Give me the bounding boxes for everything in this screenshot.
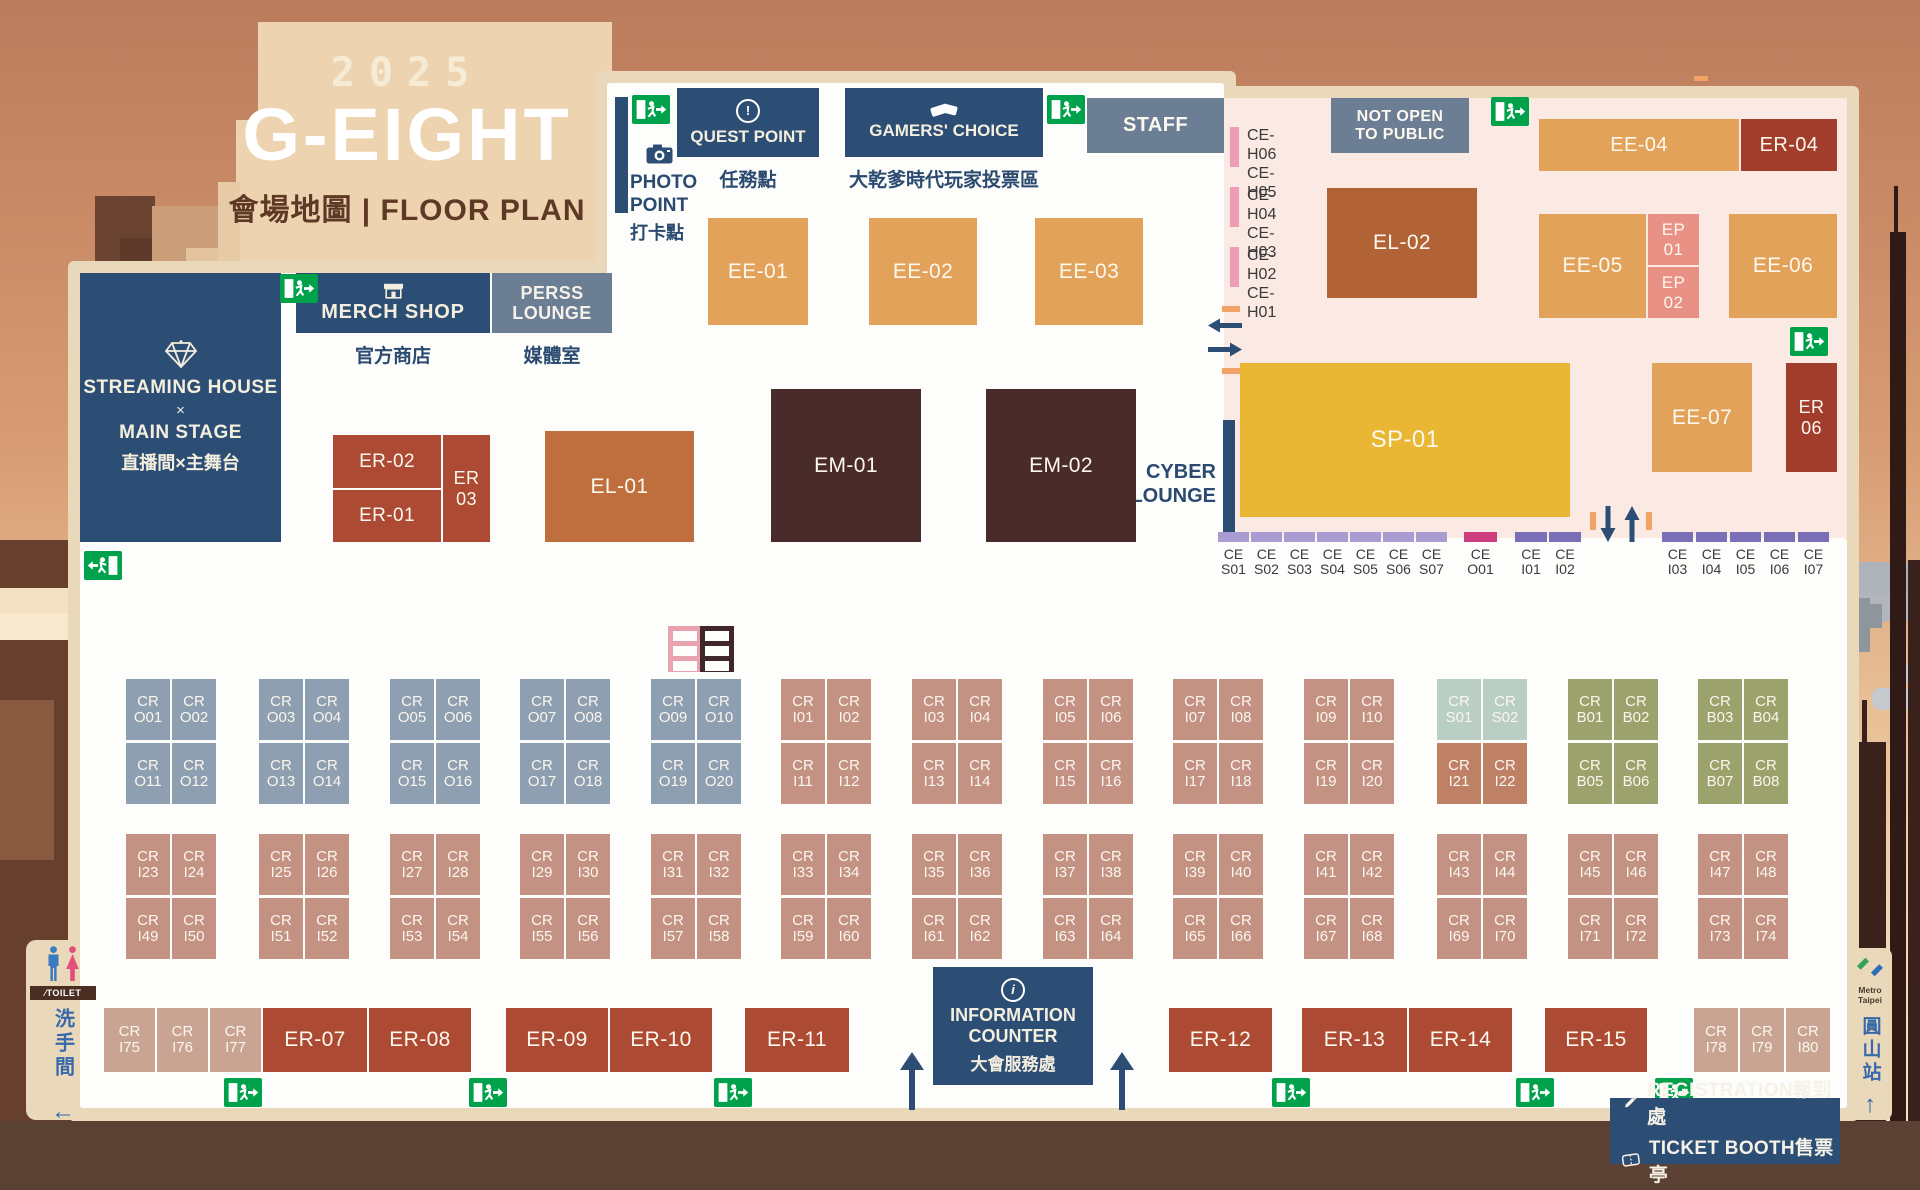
booth-CR-I56: CR I56 <box>566 898 610 959</box>
entrance-arrow-up <box>898 1050 926 1110</box>
booth-CR-I64: CR I64 <box>1089 898 1133 959</box>
cyber-lounge-bar <box>1223 420 1235 538</box>
booth-CR-I32: CR I32 <box>697 834 741 895</box>
press-lounge-label: PERSS LOUNGE <box>512 283 591 323</box>
booth-CR-B03: CR B03 <box>1698 679 1742 740</box>
booth-CR-I07: CR I07 <box>1173 679 1217 740</box>
booth-CR-I66: CR I66 <box>1219 898 1263 959</box>
entrance-arrow-up <box>1108 1050 1136 1110</box>
booth-CR-I59: CR I59 <box>781 898 825 959</box>
booth-CR-I74: CR I74 <box>1744 898 1788 959</box>
exit-sign-icon <box>1491 97 1529 126</box>
booth-CR-I11: CR I11 <box>781 743 825 804</box>
booth-CR-I54: CR I54 <box>436 898 480 959</box>
ladder-decor <box>700 626 734 672</box>
booth-CR-I45: CR I45 <box>1568 834 1612 895</box>
ce-marker-bar <box>1284 532 1315 542</box>
booth-CR-I69: CR I69 <box>1437 898 1481 959</box>
info-counter-line-2: COUNTER <box>969 1026 1058 1047</box>
streaming-house-box: STREAMING HOUSE × MAIN STAGE 直播間×主舞台 <box>80 273 281 542</box>
block-ER-14: ER-14 <box>1409 1008 1512 1072</box>
block-EM-01: EM-01 <box>771 389 921 542</box>
ce-h-bar <box>1230 247 1239 287</box>
booth-CR-I53: CR I53 <box>390 898 434 959</box>
booth-CR-I42: CR I42 <box>1350 834 1394 895</box>
booth-CR-O17: CR O17 <box>520 743 564 804</box>
title-subtitle: 會場地圖 | FLOOR PLAN <box>182 185 632 229</box>
block-EP01: EP 01 <box>1648 214 1699 265</box>
booth-CR-I21: CR I21 <box>1437 743 1481 804</box>
alert-icon: ! <box>736 99 760 123</box>
toilet-area: ∕TOILET 洗手間 ← <box>30 946 96 1126</box>
ce-marker-bar <box>1317 532 1348 542</box>
booth-CR-O19: CR O19 <box>651 743 695 804</box>
block-EM-02: EM-02 <box>986 389 1136 542</box>
gamers-choice-box: GAMERS' CHOICE <box>845 88 1043 157</box>
booth-CR-O09: CR O09 <box>651 679 695 740</box>
booth-CR-I28: CR I28 <box>436 834 480 895</box>
booth-CR-I31: CR I31 <box>651 834 695 895</box>
booth-CR-I22: CR I22 <box>1483 743 1527 804</box>
booth-CR-I50: CR I50 <box>172 898 216 959</box>
booth-CR-I14: CR I14 <box>958 743 1002 804</box>
block-ER-10: ER-10 <box>610 1008 712 1072</box>
booth-CR-I43: CR I43 <box>1437 834 1481 895</box>
diamond-icon <box>163 340 199 370</box>
booth-CR-I51: CR I51 <box>259 898 303 959</box>
block-ER06: ER 06 <box>1786 363 1837 472</box>
booth-CR-S01: CR S01 <box>1437 679 1481 740</box>
booth-CR-I35: CR I35 <box>912 834 956 895</box>
merch-shop-label: MERCH SHOP <box>321 301 465 324</box>
booth-CR-O20: CR O20 <box>697 743 741 804</box>
booth-CR-I30: CR I30 <box>566 834 610 895</box>
booth-CR-I72: CR I72 <box>1614 898 1658 959</box>
streaming-line-1: STREAMING HOUSE <box>83 377 277 399</box>
block-EE-04: EE-04 <box>1539 119 1739 171</box>
event-title: 2025 G-EIGHT 會場地圖 | FLOOR PLAN <box>182 50 632 229</box>
block-ER-07: ER-07 <box>263 1008 367 1072</box>
booth-CR-O12: CR O12 <box>172 743 216 804</box>
metro-taipei-logo-icon <box>1854 954 1886 980</box>
booth-CR-I73: CR I73 <box>1698 898 1742 959</box>
pixel-antenna <box>1862 700 1867 744</box>
booth-CR-O06: CR O06 <box>436 679 480 740</box>
booth-CR-B07: CR B07 <box>1698 743 1742 804</box>
block-EE-02: EE-02 <box>869 218 977 325</box>
block-ER-11: ER-11 <box>745 1008 849 1072</box>
booth-CR-I44: CR I44 <box>1483 834 1527 895</box>
info-icon: i <box>1001 978 1025 1002</box>
booth-CR-O16: CR O16 <box>436 743 480 804</box>
block-ER-08: ER-08 <box>369 1008 471 1072</box>
booth-CR-I55: CR I55 <box>520 898 564 959</box>
booth-CR-I61: CR I61 <box>912 898 956 959</box>
block-STAFF: STAFF <box>1087 98 1224 153</box>
booth-CR-I40: CR I40 <box>1219 834 1263 895</box>
booth-CR-I80: CR I80 <box>1786 1008 1830 1072</box>
toilet-caption: 洗手間 <box>49 1008 78 1094</box>
pixel-cliff-patch <box>0 700 54 860</box>
booth-CR-I20: CR I20 <box>1350 743 1394 804</box>
exit-sign-icon <box>632 95 670 124</box>
booth-CR-S02: CR S02 <box>1483 679 1527 740</box>
booth-CR-I12: CR I12 <box>827 743 871 804</box>
booth-CR-I79: CR I79 <box>1740 1008 1784 1072</box>
multiply-sign: × <box>176 402 185 419</box>
exit-sign-icon <box>1790 327 1828 356</box>
orange-marker <box>1590 512 1596 530</box>
booth-CR-I19: CR I19 <box>1304 743 1348 804</box>
arrow-down-icon <box>1600 504 1616 544</box>
photo-point-label-1: PHOTO <box>630 172 730 194</box>
ce-marker-bar <box>1218 532 1249 542</box>
booth-CR-I78: CR I78 <box>1694 1008 1738 1072</box>
ce-marker-bar <box>1764 532 1795 542</box>
block-ER-04: ER-04 <box>1741 119 1837 171</box>
ce-h-bar <box>1230 127 1239 167</box>
ce-marker-bar <box>1515 532 1547 542</box>
title-year: 2025 <box>182 50 632 96</box>
booth-CR-O15: CR O15 <box>390 743 434 804</box>
invader-sprite-arm <box>1870 604 1882 628</box>
booth-CR-B04: CR B04 <box>1744 679 1788 740</box>
booth-CR-I15: CR I15 <box>1043 743 1087 804</box>
ce-marker-bar <box>1696 532 1727 542</box>
exit-sign-icon <box>714 1078 752 1107</box>
booth-CR-I24: CR I24 <box>172 834 216 895</box>
booth-CR-I18: CR I18 <box>1219 743 1263 804</box>
metro-area: Metro Taipei 圓山站 ↑ <box>1848 954 1892 1119</box>
booth-CR-I52: CR I52 <box>305 898 349 959</box>
booth-CR-O05: CR O05 <box>390 679 434 740</box>
metro-arrow-up: ↑ <box>1848 1091 1892 1119</box>
metro-brand: Metro Taipei <box>1848 985 1892 1005</box>
female-figure-icon <box>65 946 80 982</box>
booth-CR-O03: CR O03 <box>259 679 303 740</box>
block-EL-01: EL-01 <box>545 431 694 542</box>
title-logo: G-EIGHT <box>182 92 632 177</box>
camera-icon <box>646 144 673 164</box>
ticket-icon <box>1622 1153 1640 1167</box>
booth-CR-O11: CR O11 <box>126 743 170 804</box>
merch-shop-caption: 官方商店 <box>296 341 490 368</box>
ce-marker-bar <box>1662 532 1693 542</box>
booth-CR-I71: CR I71 <box>1568 898 1612 959</box>
block-ER-09: ER-09 <box>506 1008 608 1072</box>
block-ER-12: ER-12 <box>1169 1008 1272 1072</box>
ce-marker-bar <box>1464 532 1497 542</box>
block-EE-05: EE-05 <box>1539 214 1646 318</box>
exit-sign-icon <box>1272 1078 1310 1107</box>
booth-CR-I04: CR I04 <box>958 679 1002 740</box>
pixel-city-tower <box>1908 560 1920 1190</box>
booth-CR-I62: CR I62 <box>958 898 1002 959</box>
booth-CR-I17: CR I17 <box>1173 743 1217 804</box>
booth-CR-I01: CR I01 <box>781 679 825 740</box>
exit-sign-icon <box>1516 1078 1554 1107</box>
booth-CR-I46: CR I46 <box>1614 834 1658 895</box>
booth-CR-I26: CR I26 <box>305 834 349 895</box>
info-counter-caption: 大會服務處 <box>971 1050 1056 1075</box>
block-EE-01: EE-01 <box>708 218 808 325</box>
pencil-icon <box>1622 1094 1638 1111</box>
photo-point-label-2: POINT <box>630 195 730 217</box>
booth-CR-I60: CR I60 <box>827 898 871 959</box>
exit-sign-icon <box>84 551 122 580</box>
booth-CR-O08: CR O08 <box>566 679 610 740</box>
press-lounge-caption: 媒體室 <box>492 341 612 368</box>
ce-marker-bar <box>1549 532 1581 542</box>
arrow-left-icon <box>1206 318 1244 333</box>
block-EE-03: EE-03 <box>1035 218 1143 325</box>
floor-plan-canvas: 2025 G-EIGHT 會場地圖 | FLOOR PLAN ! QUEST P… <box>0 0 1920 1190</box>
booth-CR-I47: CR I47 <box>1698 834 1742 895</box>
block-ER-01: ER-01 <box>333 490 441 542</box>
booth-CR-O01: CR O01 <box>126 679 170 740</box>
ce-h-bar <box>1230 187 1239 227</box>
booth-CR-B06: CR B06 <box>1614 743 1658 804</box>
booth-CR-I67: CR I67 <box>1304 898 1348 959</box>
gamers-choice-caption: 大乾爹時代玩家投票區 <box>835 165 1053 192</box>
booth-CR-O13: CR O13 <box>259 743 303 804</box>
ce-marker-bar <box>1350 532 1381 542</box>
legend-registration: REGISTRATION報到處 <box>1647 1075 1840 1129</box>
block-EL-02: EL-02 <box>1327 188 1477 298</box>
block-ER-13: ER-13 <box>1302 1008 1407 1072</box>
booth-CR-I48: CR I48 <box>1744 834 1788 895</box>
ce-marker-label: CE I02 <box>1541 547 1589 577</box>
ce-marker-bar <box>1798 532 1829 542</box>
storefront-icon <box>383 283 404 299</box>
press-lounge-box: PERSS LOUNGE <box>492 273 612 333</box>
booth-CR-I08: CR I08 <box>1219 679 1263 740</box>
arrow-up-icon <box>1624 504 1640 544</box>
ballot-icon <box>929 104 959 118</box>
booth-CR-I09: CR I09 <box>1304 679 1348 740</box>
block-ER-15: ER-15 <box>1545 1008 1647 1072</box>
block-SP-01: SP-01 <box>1240 363 1570 517</box>
booth-CR-O14: CR O14 <box>305 743 349 804</box>
ladder-decor <box>668 626 702 672</box>
booth-CR-I25: CR I25 <box>259 834 303 895</box>
booth-CR-I76: CR I76 <box>157 1008 208 1072</box>
booth-CR-I70: CR I70 <box>1483 898 1527 959</box>
exit-sign-icon <box>280 274 318 303</box>
booth-CR-I02: CR I02 <box>827 679 871 740</box>
arrow-right-icon <box>1206 342 1244 357</box>
ce-marker-bar <box>1383 532 1414 542</box>
ce-marker-bar <box>1416 532 1447 542</box>
booth-CR-B01: CR B01 <box>1568 679 1612 740</box>
gamers-choice-label: GAMERS' CHOICE <box>869 121 1019 141</box>
ce-marker-label: CE I07 <box>1790 547 1837 577</box>
booth-CR-I10: CR I10 <box>1350 679 1394 740</box>
booth-CR-O04: CR O04 <box>305 679 349 740</box>
block-NOT OPENTO PUBLIC: NOT OPEN TO PUBLIC <box>1331 98 1469 153</box>
orange-marker <box>1222 306 1240 312</box>
ce-h-label: CE-H02 CE-H01 <box>1247 246 1276 322</box>
block-ER-02: ER-02 <box>333 435 441 488</box>
legend-box: REGISTRATION報到處 TICKET BOOTH售票亭 <box>1610 1098 1840 1164</box>
booth-CR-I34: CR I34 <box>827 834 871 895</box>
booth-CR-I23: CR I23 <box>126 834 170 895</box>
booth-CR-I68: CR I68 <box>1350 898 1394 959</box>
booth-CR-I39: CR I39 <box>1173 834 1217 895</box>
block-ER03: ER 03 <box>443 435 490 542</box>
ce-marker-label: CE S07 <box>1408 547 1455 577</box>
booth-CR-B02: CR B02 <box>1614 679 1658 740</box>
booth-CR-I65: CR I65 <box>1173 898 1217 959</box>
booth-CR-I77: CR I77 <box>210 1008 261 1072</box>
booth-CR-I37: CR I37 <box>1043 834 1087 895</box>
metro-station: 圓山站 <box>1857 1011 1884 1089</box>
pixel-antenna <box>1894 186 1898 234</box>
streaming-caption: 直播間×主舞台 <box>121 449 240 475</box>
male-figure-icon <box>47 946 60 982</box>
booth-CR-O02: CR O02 <box>172 679 216 740</box>
booth-CR-I75: CR I75 <box>104 1008 155 1072</box>
orange-marker <box>1646 512 1652 530</box>
merch-shop-box: MERCH SHOP <box>296 273 490 333</box>
booth-CR-B08: CR B08 <box>1744 743 1788 804</box>
block-EP02: EP 02 <box>1648 267 1699 318</box>
toilet-sign: ∕TOILET <box>30 986 96 1000</box>
booth-CR-I29: CR I29 <box>520 834 564 895</box>
legend-ticket: TICKET BOOTH售票亭 <box>1649 1133 1840 1187</box>
exit-sign-icon <box>224 1078 262 1107</box>
exit-sign-icon <box>469 1078 507 1107</box>
booth-CR-I36: CR I36 <box>958 834 1002 895</box>
booth-CR-I06: CR I06 <box>1089 679 1133 740</box>
booth-CR-I38: CR I38 <box>1089 834 1133 895</box>
streaming-line-2: MAIN STAGE <box>119 422 242 444</box>
orange-marker <box>1694 76 1708 81</box>
booth-CR-I63: CR I63 <box>1043 898 1087 959</box>
block-EE-07: EE-07 <box>1652 363 1752 472</box>
invader-sprite-leg <box>1858 636 1870 652</box>
booth-CR-I13: CR I13 <box>912 743 956 804</box>
block-EE-06: EE-06 <box>1729 214 1837 318</box>
booth-CR-I57: CR I57 <box>651 898 695 959</box>
booth-CR-O07: CR O07 <box>520 679 564 740</box>
toilet-arrow-left: ← <box>30 1098 96 1126</box>
booth-CR-I27: CR I27 <box>390 834 434 895</box>
booth-CR-I58: CR I58 <box>697 898 741 959</box>
exit-sign-icon <box>1047 95 1085 124</box>
ce-marker-label: CE O01 <box>1456 547 1505 577</box>
ce-marker-bar <box>1251 532 1282 542</box>
booth-CR-O18: CR O18 <box>566 743 610 804</box>
pixel-city-tower <box>1890 232 1906 1190</box>
information-counter-box: i INFORMATION COUNTER 大會服務處 <box>933 967 1093 1085</box>
booth-CR-I05: CR I05 <box>1043 679 1087 740</box>
booth-CR-I49: CR I49 <box>126 898 170 959</box>
info-counter-line-1: INFORMATION <box>950 1005 1076 1026</box>
booth-CR-I33: CR I33 <box>781 834 825 895</box>
booth-CR-I03: CR I03 <box>912 679 956 740</box>
booth-CR-B05: CR B05 <box>1568 743 1612 804</box>
ce-marker-bar <box>1730 532 1761 542</box>
orange-marker <box>1222 368 1240 374</box>
booth-CR-I16: CR I16 <box>1089 743 1133 804</box>
booth-CR-I41: CR I41 <box>1304 834 1348 895</box>
booth-CR-O10: CR O10 <box>697 679 741 740</box>
